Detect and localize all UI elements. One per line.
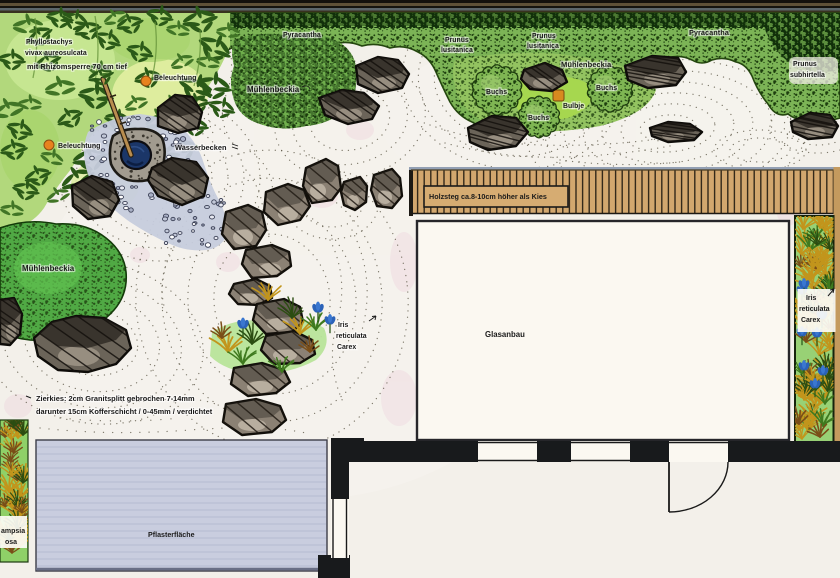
svg-text:Carex: Carex [337, 344, 356, 351]
svg-text:Mühlenbeckia: Mühlenbeckia [247, 85, 300, 94]
svg-text:Beleuchtung: Beleuchtung [58, 143, 100, 150]
svg-text:Iris: Iris [338, 322, 349, 329]
svg-text:Prunus: Prunus [793, 61, 817, 68]
svg-text:Carex: Carex [801, 317, 820, 324]
svg-text:ampsia: ampsia [1, 528, 25, 535]
svg-text:lusitanica: lusitanica [441, 47, 473, 54]
svg-text:Buchs: Buchs [596, 85, 617, 92]
svg-text:lusitanica: lusitanica [527, 43, 559, 50]
svg-text:Iris: Iris [806, 295, 817, 302]
svg-text:Zierkies: 2cm Granitsplitt geb: Zierkies: 2cm Granitsplitt gebrochen 7-1… [36, 394, 195, 403]
svg-text:Glasanbau: Glasanbau [485, 330, 525, 339]
svg-text:osa: osa [5, 539, 17, 546]
svg-text:Phyllostachys: Phyllostachys [26, 39, 73, 46]
svg-text:Pyracantha: Pyracantha [689, 28, 730, 37]
svg-text:Mühlenbeckia: Mühlenbeckia [22, 264, 75, 273]
svg-text:subhirtella: subhirtella [790, 72, 825, 79]
svg-text:Prunus: Prunus [532, 33, 556, 40]
svg-text:Buchs: Buchs [486, 89, 507, 96]
svg-text:reticulata: reticulata [336, 333, 367, 340]
svg-text:Pflasterfläche: Pflasterfläche [148, 531, 195, 539]
svg-text:Holzsteg ca.8-10cm höher als: Holzsteg ca.8-10cm höher als Kies [429, 192, 547, 201]
svg-text:Wasserbecken: Wasserbecken [175, 143, 227, 152]
svg-text:vivax aureosulcata: vivax aureosulcata [25, 50, 87, 57]
svg-text:Buchs: Buchs [528, 115, 549, 122]
svg-text:Prunus: Prunus [445, 37, 469, 44]
svg-text:Mühlenbeckia: Mühlenbeckia [561, 60, 612, 69]
svg-text:Beleuchtung: Beleuchtung [154, 75, 196, 82]
svg-text:reticulata: reticulata [799, 306, 830, 313]
svg-text:darunter 15cm Kofferschicht /: darunter 15cm Kofferschicht / 0-45mm / v… [36, 407, 213, 416]
svg-text:Bulbje: Bulbje [563, 103, 584, 110]
svg-text:Pyracantha: Pyracantha [283, 32, 321, 39]
svg-text:mit Rhizomsperre 70 cm tief: mit Rhizomsperre 70 cm tief [27, 62, 128, 71]
